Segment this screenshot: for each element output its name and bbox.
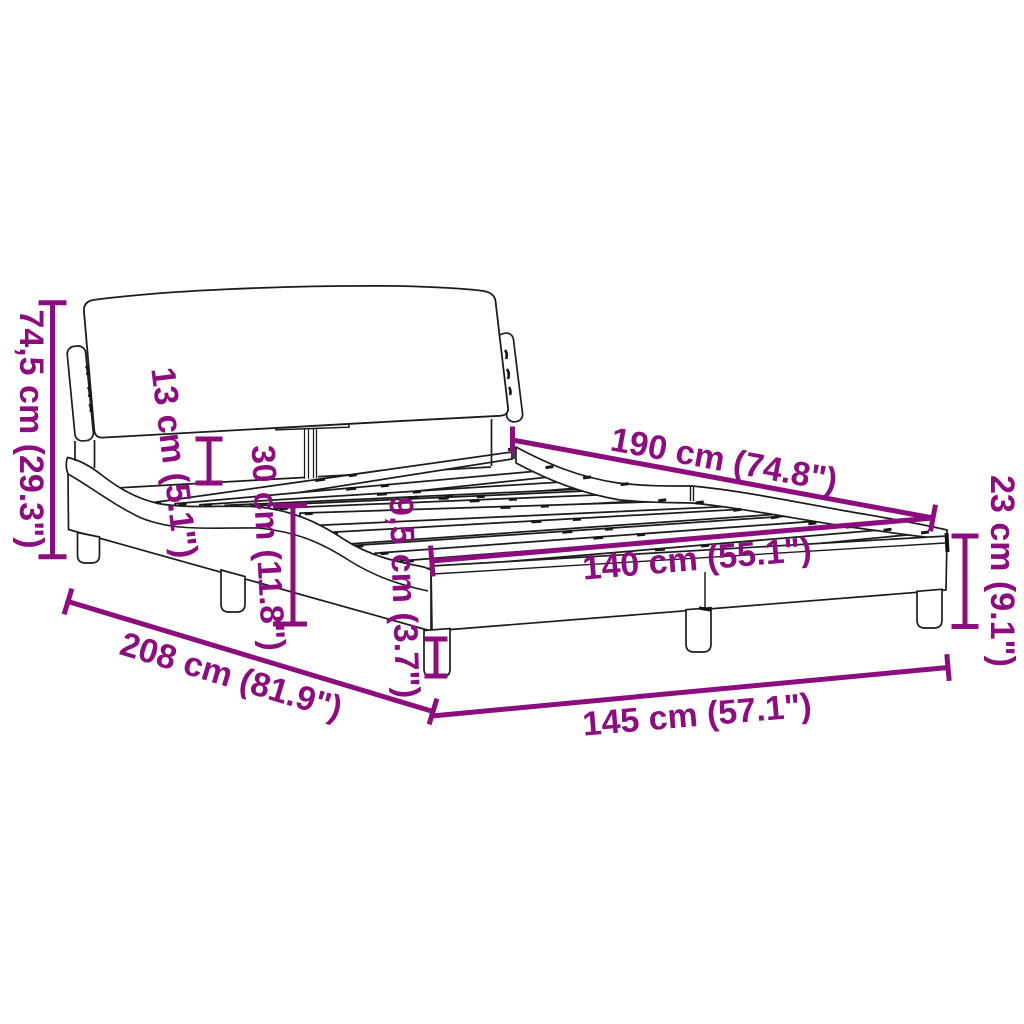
svg-text:30 cm (11.8"): 30 cm (11.8") bbox=[244, 444, 292, 651]
svg-text:9,5 cm (3.7"): 9,5 cm (3.7") bbox=[381, 496, 426, 699]
svg-text:145 cm (57.1"): 145 cm (57.1") bbox=[581, 686, 813, 743]
svg-text:23 cm (9.1"): 23 cm (9.1") bbox=[983, 475, 1021, 667]
svg-text:74,5 cm (29.3"): 74,5 cm (29.3") bbox=[12, 309, 50, 548]
